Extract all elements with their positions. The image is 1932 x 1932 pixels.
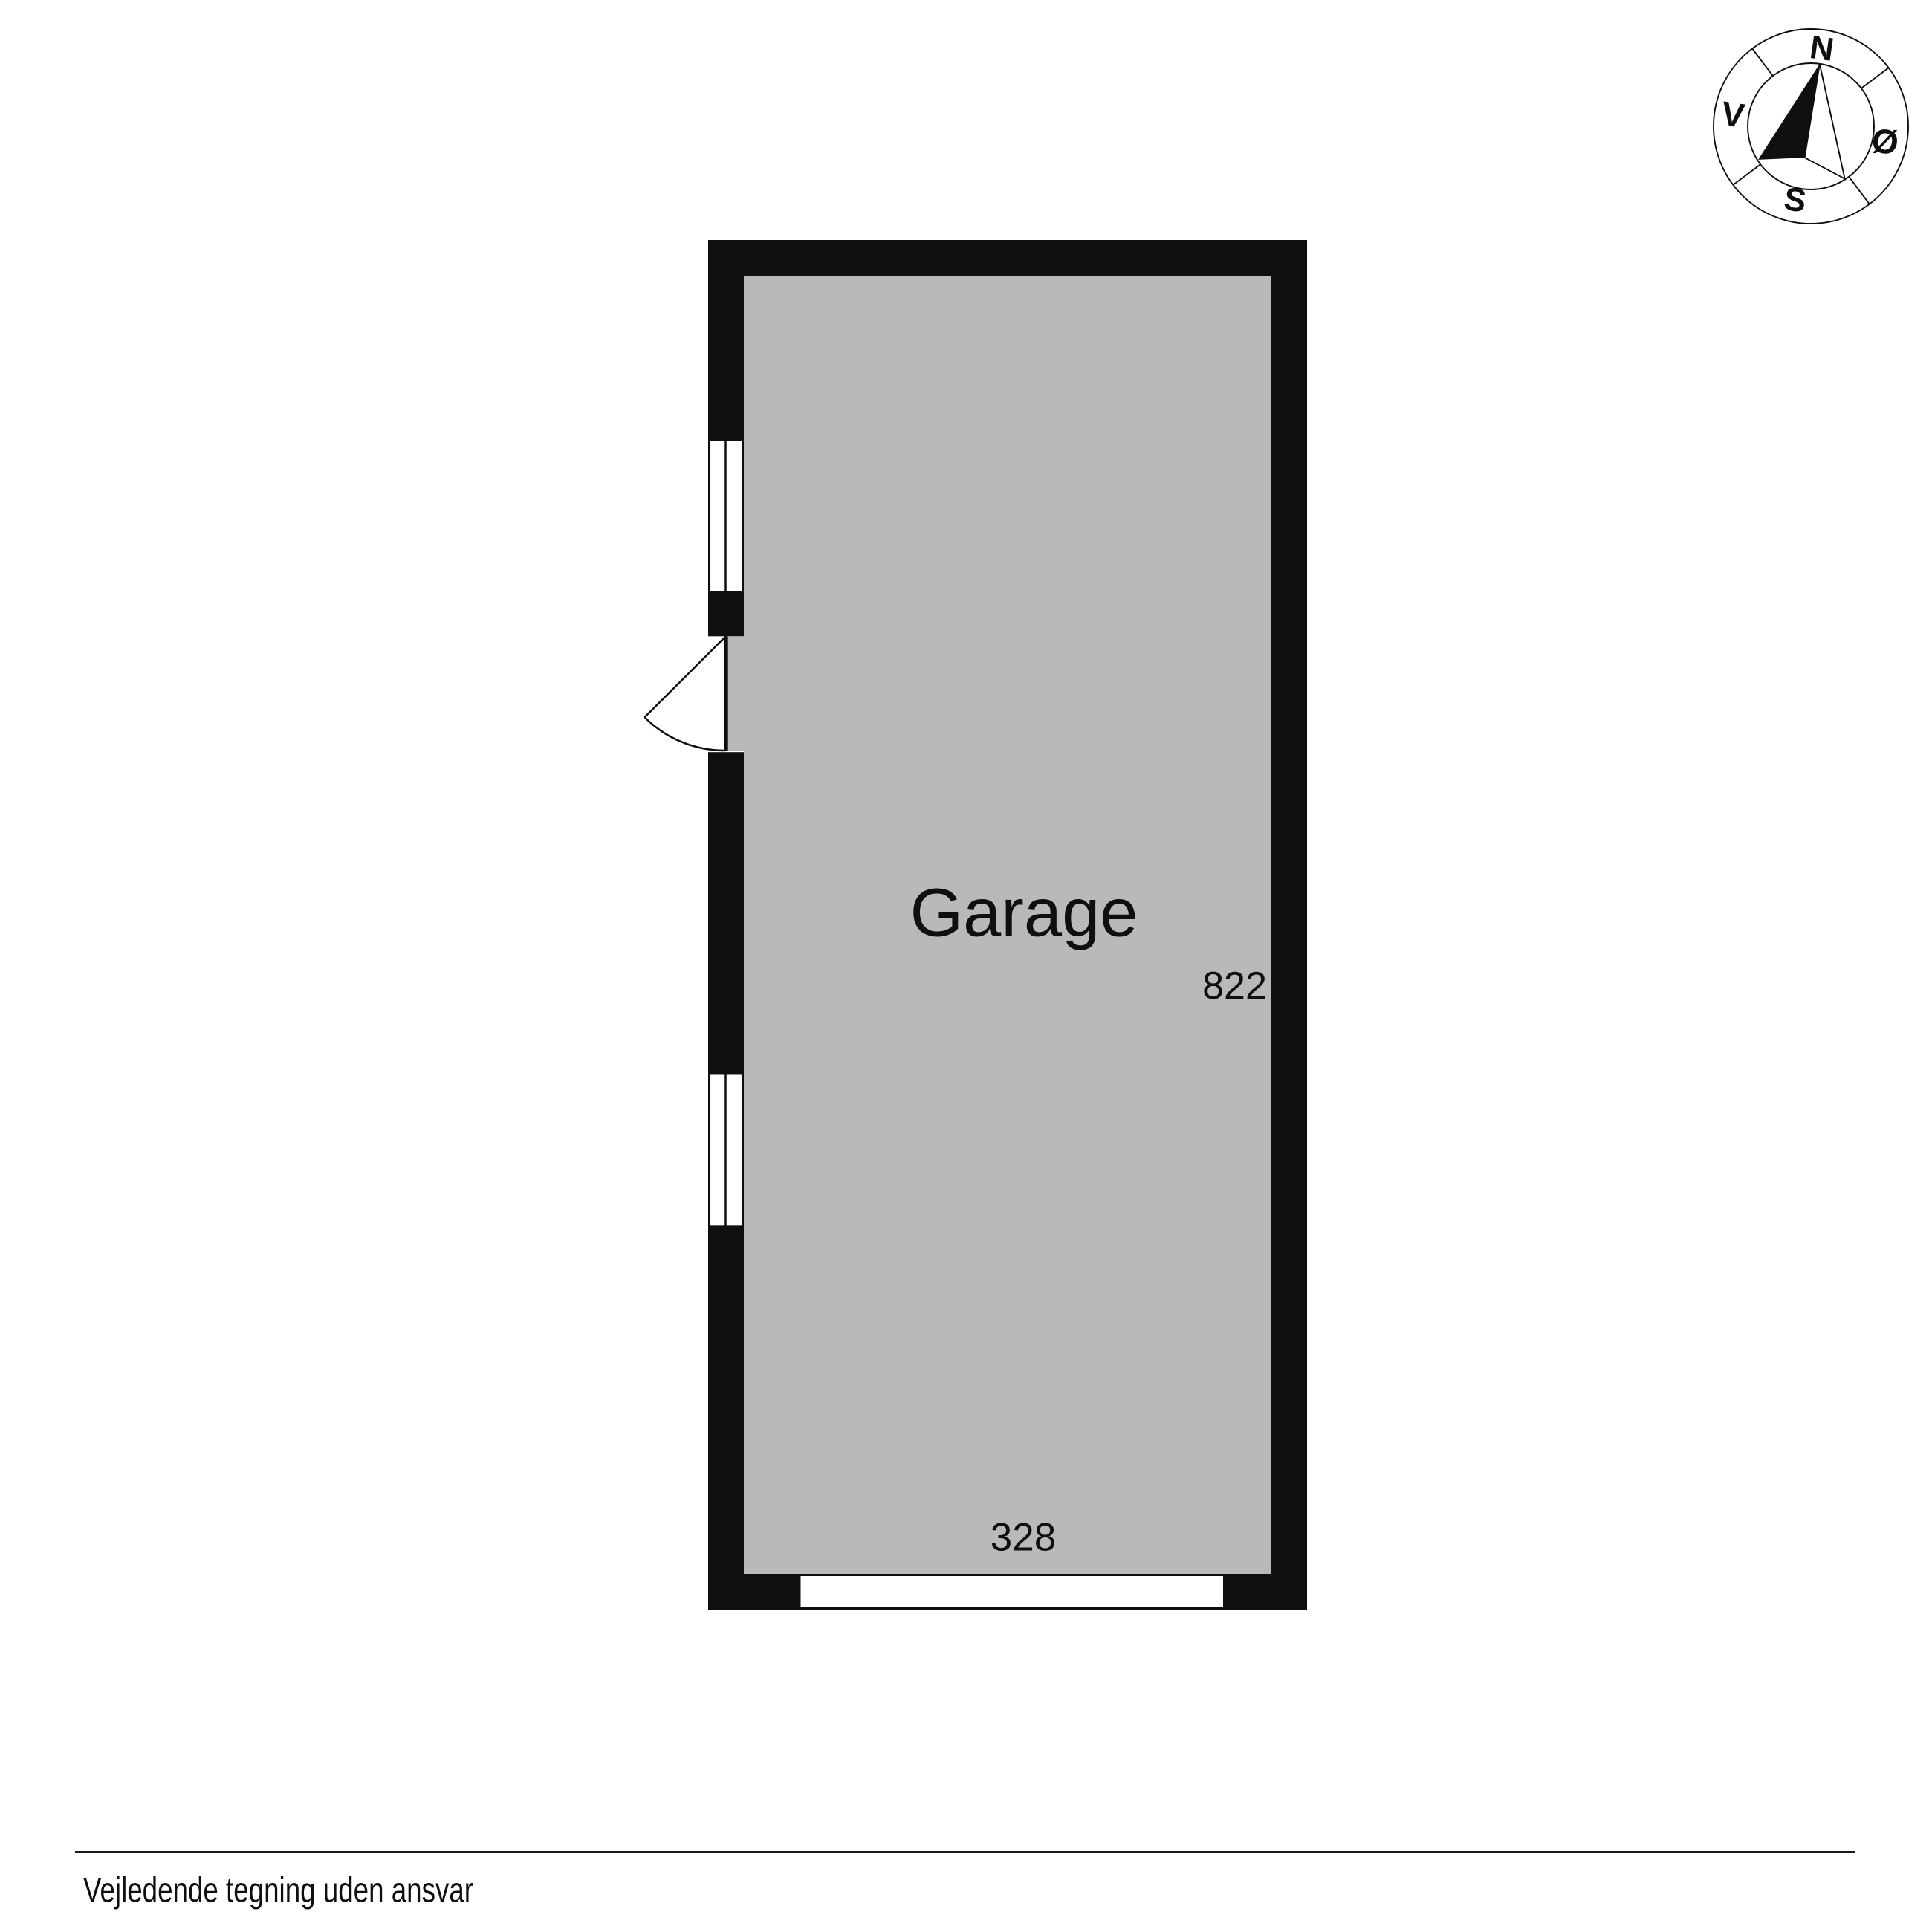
- svg-text:Vejledende tegning uden ansvar: Vejledende tegning uden ansvar: [83, 1870, 473, 1910]
- svg-text:822: 822: [1202, 965, 1267, 1008]
- svg-text:Garage: Garage: [910, 875, 1138, 951]
- svg-text:Ø: Ø: [1870, 120, 1902, 162]
- svg-text:N: N: [1808, 29, 1836, 68]
- svg-text:328: 328: [991, 1515, 1056, 1559]
